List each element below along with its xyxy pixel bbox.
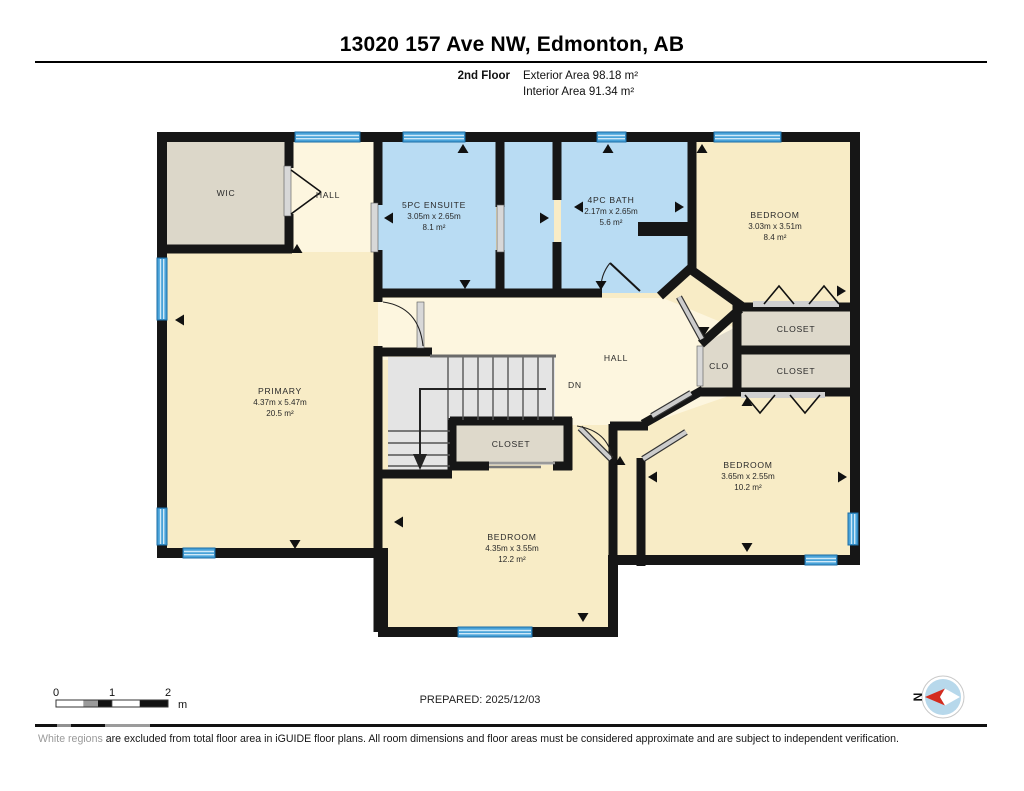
floor-label: 2nd Floor	[430, 70, 510, 82]
north-compass-icon: N	[905, 670, 969, 724]
hall-center-label: HALL	[604, 353, 628, 363]
ensuite-dims: 3.05m x 2.65m	[407, 212, 461, 221]
primary-dims: 4.37m x 5.47m	[253, 398, 307, 407]
exterior-area: Exterior Area 98.18 m²	[523, 70, 638, 82]
bedroom-se-label: BEDROOM	[723, 460, 772, 470]
bath-area: 5.6 m²	[600, 218, 623, 227]
wc-door-slab	[497, 205, 504, 252]
closet-ne-lower-label: CLOSET	[777, 366, 816, 376]
closet-center-label: CLOSET	[492, 439, 531, 449]
title-divider	[35, 61, 987, 63]
primary-area: 20.5 m²	[266, 409, 294, 418]
hall-top-label: HALL	[316, 190, 340, 200]
disclaimer-highlight: White regions	[38, 733, 103, 745]
bedroom-ne-area: 8.4 m²	[764, 233, 787, 242]
clo-label: CLO	[709, 361, 729, 371]
disclaimer-text: are excluded from total floor area in iG…	[103, 733, 899, 745]
interior-area: Interior Area 91.34 m²	[523, 86, 634, 98]
bedroom-ne-dims: 3.03m x 3.51m	[748, 222, 802, 231]
floor-plan-page: 13020 157 Ave NW, Edmonton, AB 2nd Floor…	[0, 0, 1024, 791]
scale-tick-0: 0	[53, 687, 59, 699]
page-title: 13020 157 Ave NW, Edmonton, AB	[0, 33, 1024, 57]
bedroom-south-label: BEDROOM	[487, 532, 536, 542]
stairs-lower-floor	[388, 420, 449, 478]
bath-floor	[561, 142, 688, 293]
floor-plan: WIC HALL 5PC ENSUITE 3.05m x 2.65m 8.1 m…	[150, 118, 870, 648]
bedroom-south-dims: 4.35m x 3.55m	[485, 544, 539, 553]
bath-wall-stub	[638, 222, 688, 236]
disclaimer: White regions are excluded from total fl…	[38, 733, 998, 745]
ensuite-label: 5PC ENSUITE	[402, 200, 466, 210]
bath-label: 4PC BATH	[588, 195, 635, 205]
ensuite-door-slab	[371, 203, 378, 252]
wic-door-slab	[284, 166, 291, 216]
scale-tick-2: 2	[165, 687, 171, 699]
primary-label: PRIMARY	[258, 386, 302, 396]
closet-ne-lower-track	[741, 392, 825, 398]
bath-dims: 2.17m x 2.65m	[584, 207, 638, 216]
scale-bar: 0 1 2 m	[50, 686, 250, 714]
bedroom-ne-label: BEDROOM	[750, 210, 799, 220]
scale-tick-1: 1	[109, 687, 115, 699]
floor-plan-svg: WIC HALL 5PC ENSUITE 3.05m x 2.65m 8.1 m…	[150, 118, 870, 648]
primary-door-slab	[417, 302, 424, 348]
clo-door-slab	[697, 346, 703, 386]
compass-n-label: N	[911, 693, 925, 702]
scale-unit: m	[178, 699, 187, 711]
bedroom-se-area: 10.2 m²	[734, 483, 762, 492]
closet-ne-upper-label: CLOSET	[777, 324, 816, 334]
ensuite-area: 8.1 m²	[423, 223, 446, 232]
footer-divider	[35, 724, 987, 727]
bedroom-se-dims: 3.65m x 2.55m	[721, 472, 775, 481]
stairs-dn-label: DN	[568, 380, 582, 390]
wic-label: WIC	[217, 188, 236, 198]
prepared-date: PREPARED: 2025/12/03	[330, 694, 630, 706]
bedroom-south-area: 12.2 m²	[498, 555, 526, 564]
floor-info: 2nd Floor Exterior Area 98.18 m² Interio…	[430, 70, 638, 102]
